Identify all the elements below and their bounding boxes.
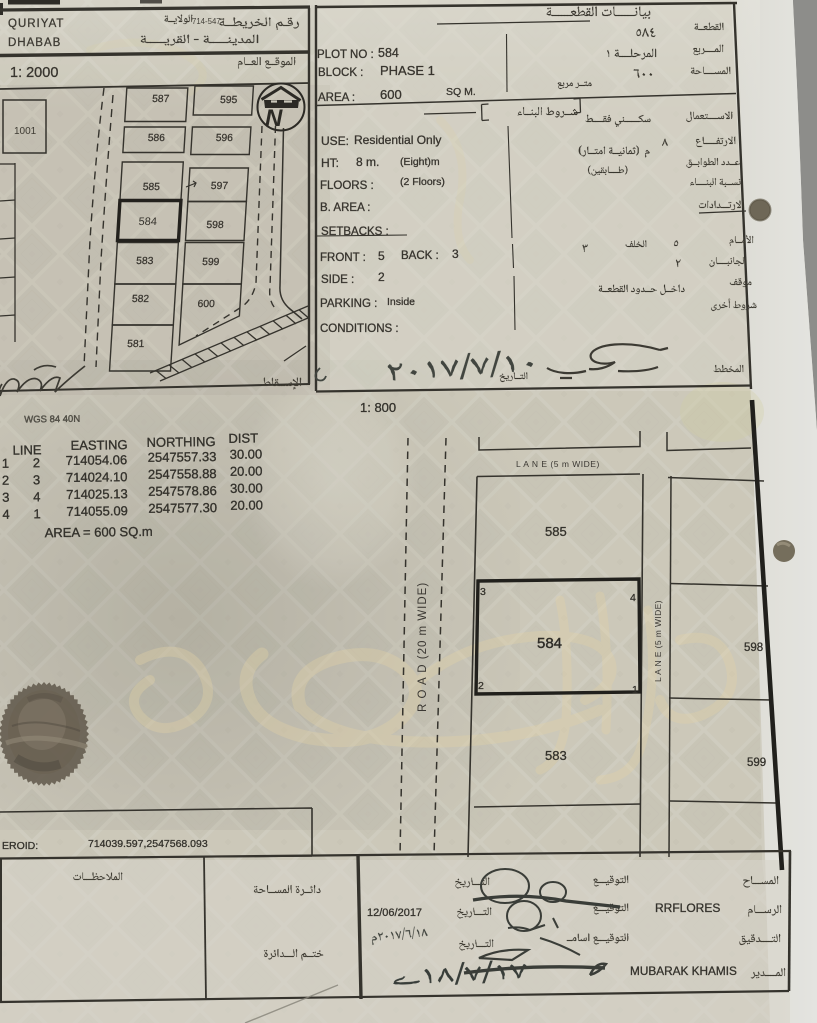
svg-text:2: 2 xyxy=(33,455,40,470)
svg-text:USE:: USE: xyxy=(321,134,349,148)
svg-text:714054.06: 714054.06 xyxy=(66,452,128,468)
svg-text:PHASE 1: PHASE 1 xyxy=(380,63,435,78)
svg-text:3: 3 xyxy=(452,247,459,261)
svg-text:714039.597,2547568.093: 714039.597,2547568.093 xyxy=(88,838,208,850)
svg-text:SQ M.: SQ M. xyxy=(446,86,476,98)
svg-text:1: 1 xyxy=(2,456,9,471)
svg-text:1001: 1001 xyxy=(14,126,37,137)
svg-text:(Eight)m: (Eight)m xyxy=(400,156,440,168)
svg-text:714-547: 714-547 xyxy=(192,17,221,26)
svg-text:2: 2 xyxy=(378,270,385,284)
svg-text:2547558.88: 2547558.88 xyxy=(148,466,217,482)
svg-text:597: 597 xyxy=(210,181,228,192)
svg-text:584: 584 xyxy=(537,635,562,652)
svg-text:4: 4 xyxy=(33,489,40,504)
svg-text:582: 582 xyxy=(132,294,150,305)
svg-text:R O A D (20 m WIDE): R O A D (20 m WIDE) xyxy=(417,582,429,712)
svg-text:B. AREA :: B. AREA : xyxy=(320,202,371,214)
svg-text:BLOCK :: BLOCK : xyxy=(318,67,363,79)
svg-text:NORTHING: NORTHING xyxy=(146,434,215,450)
svg-text:585: 585 xyxy=(142,182,160,193)
svg-text:BACK :: BACK : xyxy=(401,250,439,262)
svg-text:586: 586 xyxy=(147,133,165,144)
svg-text:714055.09: 714055.09 xyxy=(66,503,128,519)
svg-text:584: 584 xyxy=(378,46,399,60)
svg-text:2547577.30: 2547577.30 xyxy=(148,500,217,516)
svg-text:1: 1 xyxy=(33,506,40,521)
svg-text:MUBARAK KHAMIS: MUBARAK KHAMIS xyxy=(630,964,737,978)
svg-text:WGS 84 40N: WGS 84 40N xyxy=(24,414,80,426)
svg-text:PLOT NO :: PLOT NO : xyxy=(317,49,374,61)
svg-text:1: 1 xyxy=(632,684,638,696)
svg-text:AREA = 600 SQ.m: AREA = 600 SQ.m xyxy=(45,524,153,540)
svg-text:1: 800: 1: 800 xyxy=(360,400,396,415)
svg-text:N: N xyxy=(265,105,283,132)
svg-text:583: 583 xyxy=(136,256,154,267)
svg-text:DIST: DIST xyxy=(228,430,258,445)
svg-text:RRFLORES: RRFLORES xyxy=(655,901,720,915)
svg-text:1: 2000: 1: 2000 xyxy=(10,65,58,81)
svg-text:599: 599 xyxy=(202,257,220,268)
svg-text:30.00: 30.00 xyxy=(230,480,263,495)
svg-text:EROID:: EROID: xyxy=(2,840,38,852)
svg-text:599: 599 xyxy=(747,757,766,769)
svg-text:2547578.86: 2547578.86 xyxy=(148,483,217,499)
svg-text:SIDE :: SIDE : xyxy=(321,274,354,286)
svg-text:Residential Only: Residential Only xyxy=(354,133,441,147)
svg-text:596: 596 xyxy=(215,133,233,144)
svg-text:2: 2 xyxy=(2,473,9,488)
svg-text:4: 4 xyxy=(2,507,9,522)
svg-text:584: 584 xyxy=(138,216,157,228)
svg-text:714025.13: 714025.13 xyxy=(66,486,128,502)
svg-text:2547557.33: 2547557.33 xyxy=(148,449,217,465)
svg-text:3: 3 xyxy=(480,586,486,598)
svg-text:598: 598 xyxy=(744,642,763,654)
svg-text:2: 2 xyxy=(478,680,484,692)
svg-text:FRONT :: FRONT : xyxy=(320,252,366,264)
svg-text:5: 5 xyxy=(378,249,385,263)
svg-text:3: 3 xyxy=(33,472,40,487)
svg-text:12/06/2017: 12/06/2017 xyxy=(367,907,422,919)
svg-text:20.00: 20.00 xyxy=(230,463,263,478)
svg-text:QURIYAT: QURIYAT xyxy=(8,18,64,30)
svg-text:AREA :: AREA : xyxy=(318,92,355,104)
svg-text:L A N E (5 m WIDE): L A N E (5 m WIDE) xyxy=(653,600,663,682)
svg-text:8 m.: 8 m. xyxy=(356,155,379,169)
svg-text:581: 581 xyxy=(127,339,145,350)
svg-text:DHABAB: DHABAB xyxy=(8,37,61,49)
svg-text:598: 598 xyxy=(206,220,224,231)
svg-text:595: 595 xyxy=(220,95,238,106)
svg-text:Inside: Inside xyxy=(387,296,415,308)
svg-text:600: 600 xyxy=(197,299,215,310)
svg-text:EASTING: EASTING xyxy=(70,437,127,453)
svg-text:587: 587 xyxy=(152,94,170,105)
svg-text:583: 583 xyxy=(545,748,567,763)
svg-text:(2 Floors): (2 Floors) xyxy=(400,176,445,188)
svg-text:714024.10: 714024.10 xyxy=(66,469,128,485)
svg-text:3: 3 xyxy=(2,490,9,505)
svg-text:FLOORS :: FLOORS : xyxy=(320,180,374,192)
svg-text:30.00: 30.00 xyxy=(230,446,263,461)
svg-text:585: 585 xyxy=(545,524,567,539)
svg-text:PARKING :: PARKING : xyxy=(320,298,377,310)
svg-text:HT:: HT: xyxy=(321,156,339,170)
svg-text:4: 4 xyxy=(630,592,636,604)
svg-text:CONDITIONS :: CONDITIONS : xyxy=(320,323,399,335)
svg-text:20.00: 20.00 xyxy=(230,497,263,512)
svg-text:L A N E (5 m WIDE): L A N E (5 m WIDE) xyxy=(516,459,600,469)
svg-text:600: 600 xyxy=(380,87,402,102)
